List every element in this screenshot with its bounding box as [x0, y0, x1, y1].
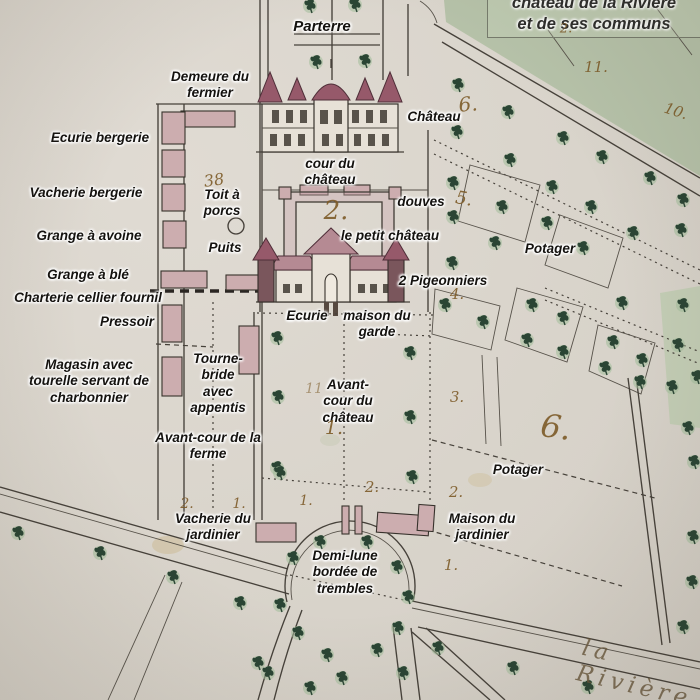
parterre-garden	[268, 0, 408, 80]
lower-roads	[108, 575, 505, 700]
estate-map: château de la Rivière et de ses communs …	[0, 0, 700, 700]
map-title-box: château de la Rivière et de ses communs	[487, 0, 700, 38]
map-title-line1: château de la Rivière	[488, 0, 700, 14]
well-circle	[228, 218, 244, 234]
chateau-drawing	[256, 59, 404, 152]
map-title-line2: et de ses communs	[488, 14, 700, 35]
orchard-roads	[428, 140, 700, 586]
farm-courtyard	[150, 0, 264, 520]
farm-buildings	[161, 111, 262, 396]
demi-lune	[256, 504, 435, 602]
map-artwork	[0, 0, 700, 700]
